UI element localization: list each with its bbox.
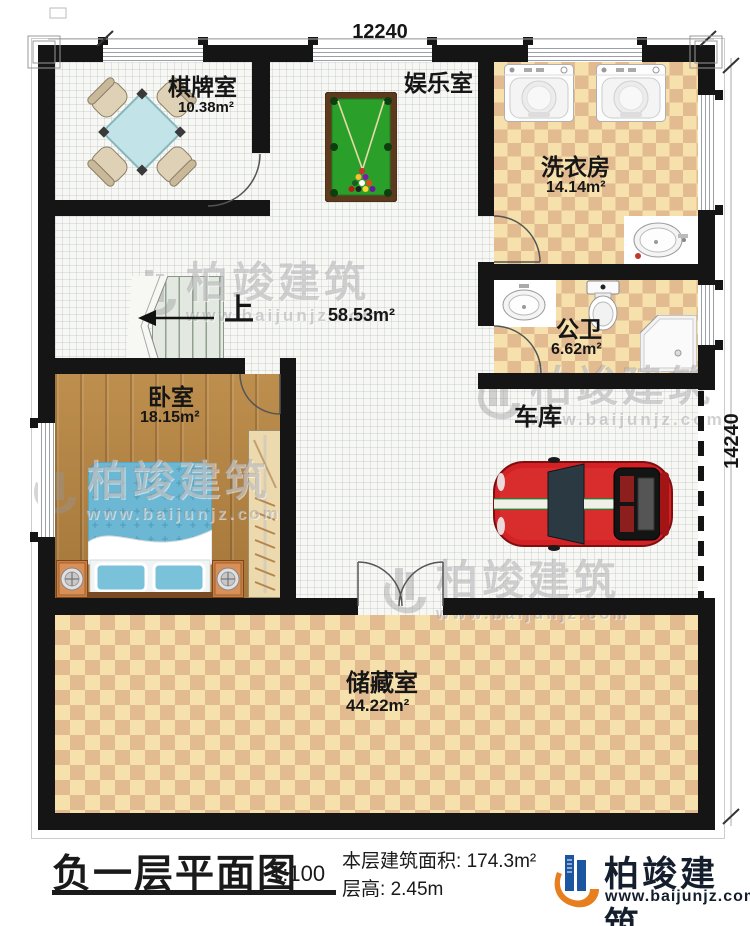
stat-floor-area-value: 174.3m² xyxy=(467,851,537,872)
sink-icon xyxy=(496,282,554,326)
wall-nub xyxy=(308,37,318,45)
wall-nub xyxy=(98,37,108,45)
washing-machine-2 xyxy=(596,64,666,122)
floor-plan-page: 柏竣建筑 www.baijunjz.com 柏竣建筑 www.baijunjz.… xyxy=(0,0,750,926)
wall-bathroom-bottom xyxy=(478,373,715,389)
wall-nub xyxy=(427,37,437,45)
wall-laundry-left xyxy=(478,45,494,216)
room-label-bedroom: 卧室 xyxy=(148,386,194,409)
pool-table xyxy=(325,92,397,202)
watermark-company: 柏竣建筑 xyxy=(186,262,381,304)
title-underline xyxy=(52,890,336,895)
stat-floor-area: 本层建筑面积: 174.3m² xyxy=(342,846,536,873)
nightstand-icon xyxy=(212,560,244,598)
window-left-bedroom xyxy=(38,423,55,537)
stat-floor-height: 层高: 2.45m xyxy=(342,874,443,901)
hall-area: 58.53m² xyxy=(328,306,395,324)
window-top-laundry xyxy=(528,45,642,62)
wall-chessroom-bottom xyxy=(38,200,270,216)
washing-machine-icon xyxy=(596,64,666,122)
wall-nub xyxy=(30,532,38,542)
wall-bedroom-top xyxy=(38,358,245,374)
company-name: 柏竣建筑 xyxy=(604,846,750,926)
room-area-storage: 44.22m² xyxy=(346,697,409,714)
wall-storage-top-right xyxy=(443,598,715,615)
room-label-entertainment: 娱乐室 xyxy=(404,72,473,95)
wall-nub xyxy=(30,418,38,428)
wall-nub xyxy=(198,37,208,45)
wall-nub xyxy=(715,340,723,350)
company-logo-icon xyxy=(546,850,600,910)
wall-laundry-bath-divider xyxy=(478,264,715,280)
window-top-hall xyxy=(313,45,432,62)
plan-scale: 1:100 xyxy=(270,861,325,887)
room-label-chess: 棋牌室 xyxy=(168,76,237,99)
watermark-company: 柏竣建筑 xyxy=(86,460,281,502)
wall-chessroom-right xyxy=(252,45,270,153)
wall-bathroom-left xyxy=(478,280,494,326)
room-area-bedroom: 18.15m² xyxy=(140,410,200,426)
stat-floor-area-label: 本层建筑面积: xyxy=(342,851,461,872)
wall-nub xyxy=(715,280,723,290)
wall-storage-top-left xyxy=(38,598,358,615)
watermark-company: 柏竣建筑 xyxy=(436,560,631,602)
room-area-bathroom: 6.62m² xyxy=(551,342,602,358)
wall-bedroom-right xyxy=(280,358,296,615)
watermark-website: www.baijunjz.com xyxy=(86,505,281,522)
washing-machine-icon xyxy=(504,64,574,122)
watermark-logo-icon xyxy=(126,262,178,318)
room-label-laundry: 洗衣房 xyxy=(541,156,610,179)
nightstand-right xyxy=(212,560,244,598)
watermark-logo-icon xyxy=(376,560,428,616)
nightstand-left xyxy=(56,560,88,598)
car xyxy=(492,456,674,552)
nightstand-icon xyxy=(56,560,88,598)
bathroom-sink xyxy=(496,282,554,326)
laundry-sink xyxy=(626,218,696,262)
room-label-bathroom: 公卫 xyxy=(556,318,602,341)
stat-floor-height-value: 2.45m xyxy=(391,879,444,900)
company-logo xyxy=(546,850,600,915)
company-website: www.baijunjz.com xyxy=(605,888,750,906)
window-right-laundry xyxy=(698,95,715,210)
room-area-chess: 10.38m² xyxy=(178,100,234,115)
window-right-bathroom xyxy=(698,285,715,345)
car-icon xyxy=(492,456,674,552)
sink-icon xyxy=(626,218,696,262)
dimension-top: 12240 xyxy=(340,22,420,42)
wall-nub xyxy=(715,205,723,215)
stairs-up-label: 上 xyxy=(224,296,254,327)
room-label-garage: 车库 xyxy=(514,406,562,430)
wall-nub xyxy=(523,37,533,45)
wall-right-lower xyxy=(698,598,715,830)
pool-table-icon xyxy=(325,92,397,202)
washing-machine-1 xyxy=(504,64,574,122)
wall-nub xyxy=(715,90,723,100)
wall-bottom xyxy=(38,813,715,830)
watermark: 柏竣建筑 www.baijunjz.com xyxy=(26,460,281,522)
room-area-laundry: 14.14m² xyxy=(546,180,606,196)
window-top-chessroom xyxy=(103,45,203,62)
dimension-right: 14240 xyxy=(722,396,744,486)
wall-nub xyxy=(637,37,647,45)
stat-floor-height-label: 层高: xyxy=(342,879,385,900)
room-label-storage: 储藏室 xyxy=(346,672,418,696)
